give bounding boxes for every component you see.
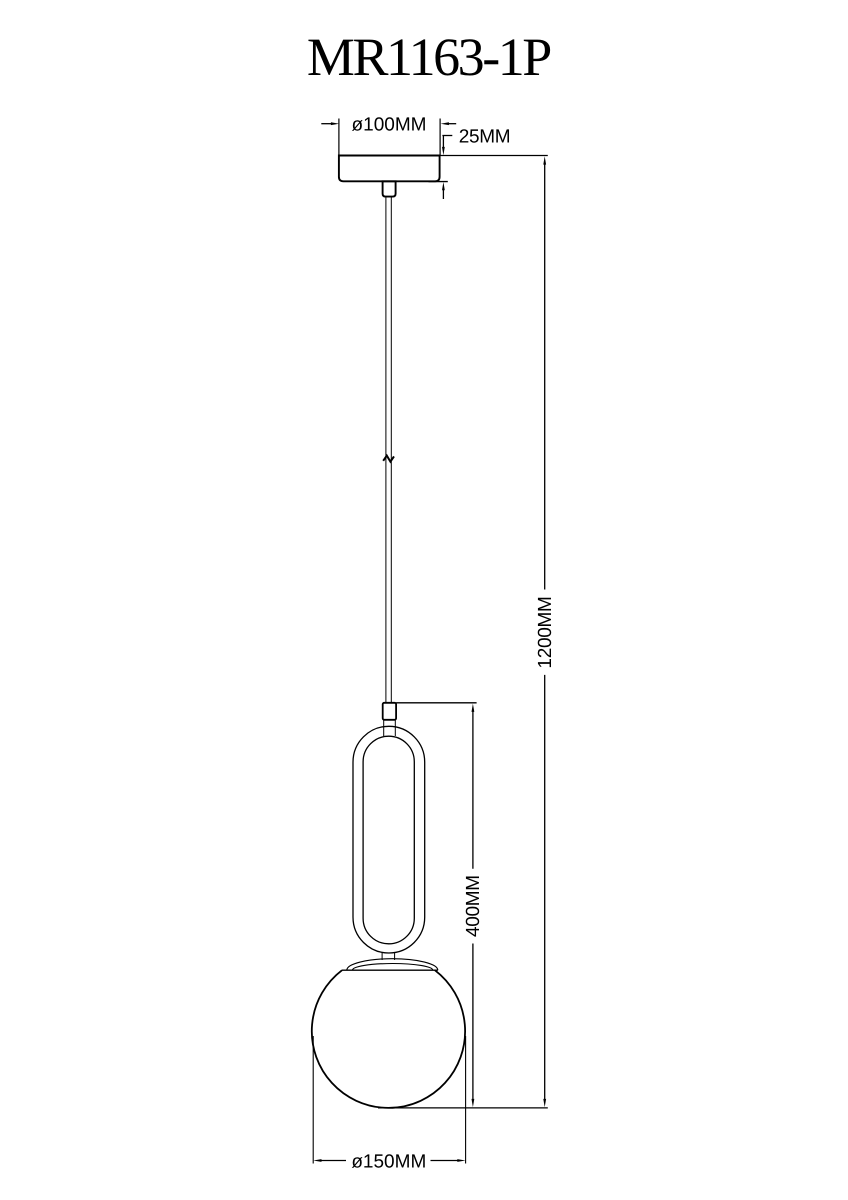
- svg-text:ø150MM: ø150MM: [351, 1151, 426, 1172]
- svg-text:1200MM: 1200MM: [535, 596, 556, 668]
- svg-text:ø100MM: ø100MM: [352, 115, 427, 136]
- svg-text:MR1163-1P: MR1163-1P: [307, 27, 550, 87]
- svg-text:400MM: 400MM: [463, 875, 484, 937]
- svg-text:25MM: 25MM: [459, 126, 511, 147]
